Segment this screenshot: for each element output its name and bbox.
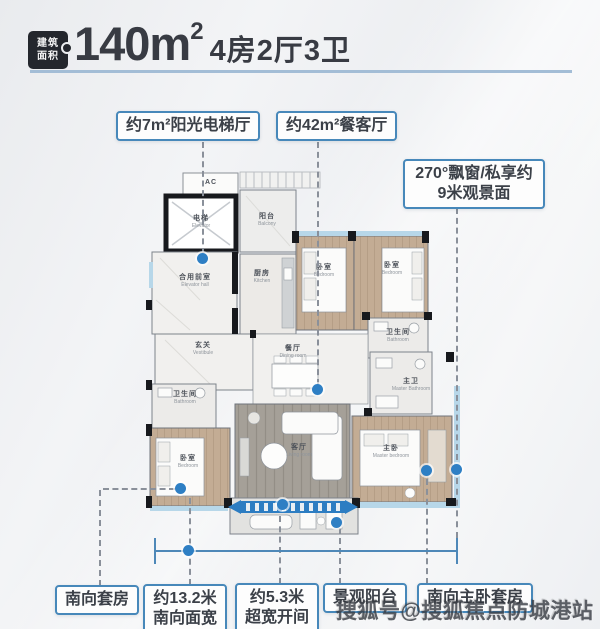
room-kitchen: [240, 254, 296, 334]
room-ac: [183, 173, 238, 194]
leader-bay-window-lower: [456, 478, 458, 538]
room-master-bath: [370, 352, 432, 414]
callout-wide-bay: 约5.3米超宽开间: [235, 583, 319, 629]
floor-plan: [0, 0, 600, 629]
poi-dot-bay-window: [451, 464, 462, 475]
leader-south-suite-h: [103, 488, 175, 490]
room-bathroom-left: [152, 384, 216, 428]
poi-dot-bedroom-left: [175, 483, 186, 494]
callout-elevator-hall: 约7m²阳光电梯厅: [116, 111, 260, 141]
dimension-tick-left: [154, 538, 156, 564]
watermark: 搜狐号@搜狐焦点防城港站: [336, 595, 593, 625]
room-vestibule: [155, 334, 253, 390]
leader-master-suite: [426, 479, 428, 584]
callout-dining-living: 约42m²餐客厅: [276, 111, 397, 141]
room-bedroom-a: [296, 236, 354, 330]
room-living: [235, 404, 350, 498]
callout-south-width: 约13.2米南向面宽: [143, 584, 227, 629]
poi-dot-wide-bay: [277, 499, 288, 510]
room-dining: [253, 334, 368, 404]
room-balcony-top: [240, 190, 296, 252]
floorplan-poster: 建筑 面积 140m24房2厅3卫: [0, 0, 600, 629]
poi-dot-master-bedroom: [421, 465, 432, 476]
poi-dot-elevator-hall: [197, 253, 208, 264]
callout-south-suite: 南向套房: [55, 585, 139, 615]
wide-bay-arrow-band: [228, 500, 358, 514]
room-elevator: [166, 196, 236, 251]
dimension-tick-right: [456, 538, 458, 564]
dimension-line: [155, 550, 458, 552]
callout-bay-window: 270°飘窗/私享约9米观景面: [403, 159, 545, 209]
leader-bay-window: [456, 208, 458, 460]
roof-hatch: [240, 172, 320, 188]
leader-elevator-hall: [202, 142, 204, 254]
leader-south-width: [189, 498, 191, 585]
leader-dining-living: [317, 142, 319, 385]
poi-dot-dimension: [183, 545, 194, 556]
poi-dot-dining: [312, 384, 323, 395]
leader-view-balcony: [339, 528, 341, 584]
room-bedroom-c: [150, 428, 230, 506]
room-master-bedroom: [352, 416, 452, 502]
leader-south-suite: [99, 490, 101, 586]
room-elevator-hall: [149, 252, 237, 334]
poi-dot-balcony: [331, 517, 342, 528]
